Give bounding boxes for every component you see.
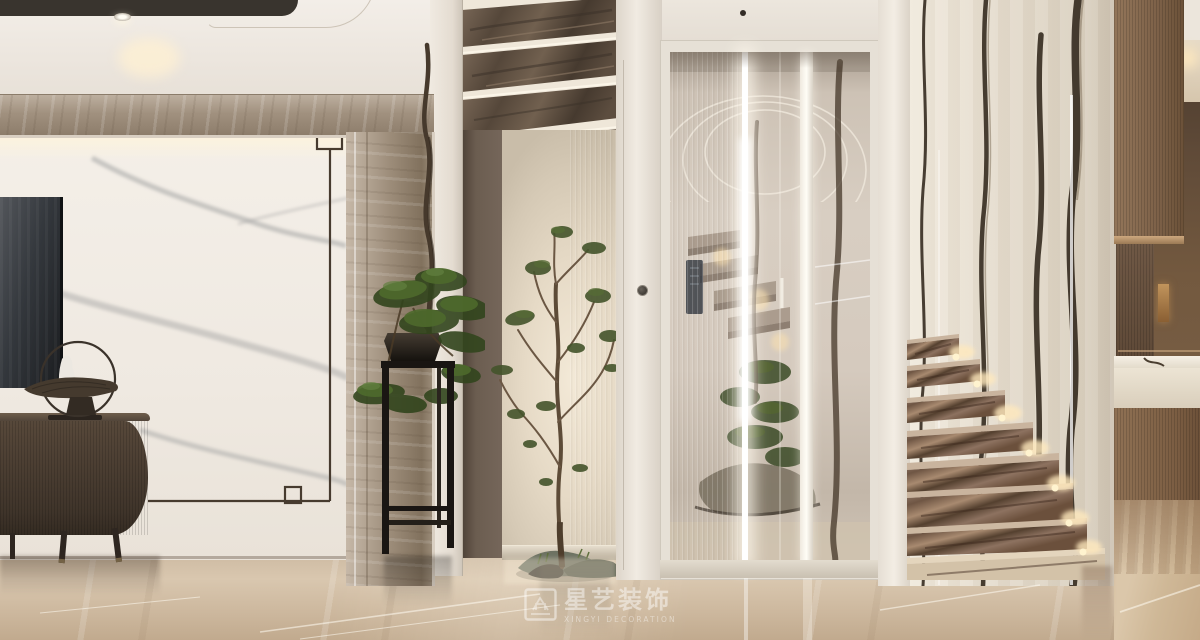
plant-stand-leg	[437, 368, 441, 528]
rail-line	[1118, 350, 1200, 352]
plant-stand-leg	[382, 368, 389, 554]
watermark-logo-icon	[524, 588, 557, 621]
watermark: 星艺装饰 XINGYI DECORATION	[524, 588, 677, 624]
pillar-groove	[623, 60, 624, 570]
plant-stand-rail	[383, 506, 451, 511]
plant-stand-rail	[389, 520, 451, 525]
fluted-glass	[672, 52, 742, 564]
floating-stair-treads	[907, 328, 1105, 580]
downlight	[114, 13, 131, 21]
beam-dot	[740, 10, 746, 16]
atrium-tree	[490, 222, 616, 572]
counter-face	[1114, 368, 1200, 408]
bonsai-foliage	[343, 248, 485, 420]
glass-top-shadow	[670, 52, 870, 68]
tv-cabinet-body	[0, 421, 148, 535]
watermark-brand: 星艺装饰	[564, 588, 677, 613]
pillar-knob	[637, 285, 648, 296]
slat-screen	[1116, 244, 1154, 362]
ring-sculpture	[18, 333, 143, 425]
amber-wall-light	[1158, 284, 1169, 322]
counter-vein	[1114, 356, 1200, 368]
counter-wood-base	[1114, 408, 1200, 500]
spotlight-glow	[118, 38, 180, 78]
watermark-brand-en: XINGYI DECORATION	[564, 615, 677, 624]
watermark-text: 星艺装饰 XINGYI DECORATION	[564, 588, 677, 624]
led-strip-core	[742, 140, 748, 420]
door-mullion	[800, 52, 813, 564]
wood-column-lip	[1114, 236, 1184, 244]
interior-render: 星艺装饰 XINGYI DECORATION	[0, 0, 1200, 640]
wood-slat-column	[1114, 0, 1184, 244]
plant-stand-top	[381, 361, 455, 368]
